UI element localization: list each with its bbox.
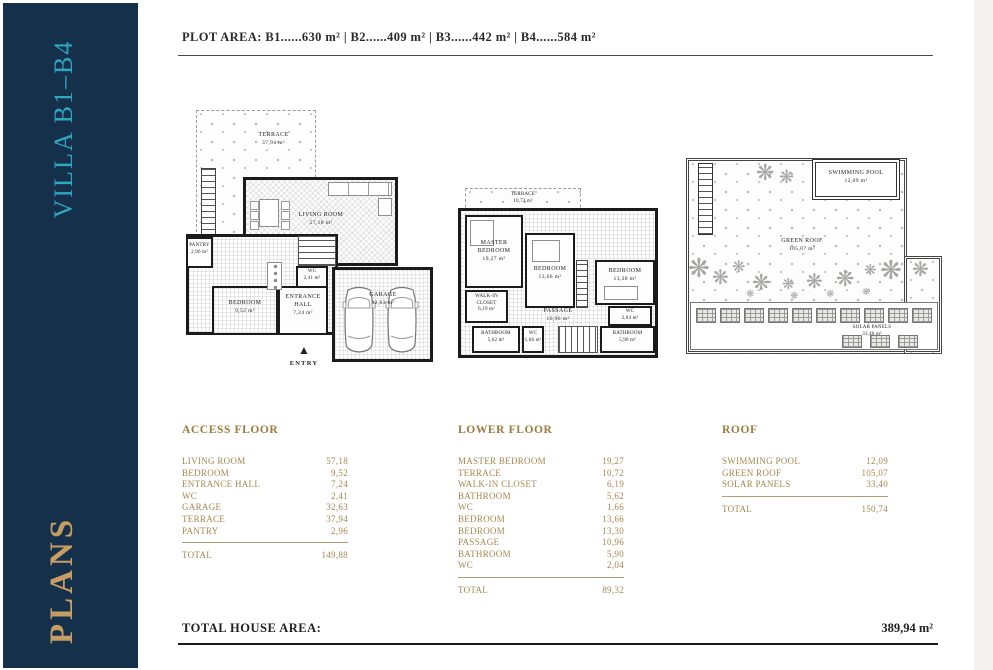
- sofa-icon: [378, 198, 392, 216]
- table-row: WALK-IN CLOSET6,19: [458, 479, 624, 491]
- entry-arrow-icon: ▲: [298, 344, 310, 356]
- table-row: PANTRY2,96: [182, 526, 348, 538]
- solar-panel: [696, 308, 716, 323]
- room-wc-label: WC 2,41 m²: [296, 269, 328, 282]
- tree-icon: ❋: [864, 264, 877, 279]
- room-wc-1-label: WC 1,66 m²: [522, 331, 544, 344]
- bush-icon: ❋: [746, 290, 754, 300]
- stairs-icon: [558, 326, 598, 353]
- tree-icon: ❋: [836, 268, 854, 290]
- table-row: TERRACE10,72: [458, 468, 624, 480]
- table-row: BEDROOM9,52: [182, 468, 348, 480]
- tree-icon: ❋: [779, 168, 794, 186]
- bush-icon: ❋: [826, 290, 834, 300]
- table-row: TERRACE37,94: [182, 514, 348, 526]
- solar-panel: [792, 308, 812, 323]
- table-row: BATHROOM5,90: [458, 549, 624, 561]
- ladder-icon: [698, 163, 713, 235]
- room-pool-label: SWIMMING POOL 12,09 m²: [816, 170, 896, 185]
- room-bathroom-1-label: BATHROOM 5,62 m²: [472, 331, 520, 344]
- tree-icon: ❋: [912, 260, 929, 280]
- sidebar-villa-title: VILLA B1–B4: [49, 34, 81, 224]
- access-floor-table: ACCESS FLOOR LIVING ROOM57,18 BEDROOM9,5…: [182, 424, 348, 560]
- table-row: WC2,04: [458, 560, 624, 572]
- chair-icon: [250, 211, 259, 220]
- chair-icon: [281, 201, 290, 210]
- plans-page: VILLA B1–B4 PLANS PLOT AREA: B1......630…: [0, 0, 993, 670]
- table-total-row: TOTAL149,88: [182, 542, 348, 560]
- bed-icon: [532, 240, 560, 262]
- lower-floor-plan: TERRACE 10,72 m² MASTER BEDROOM 19,27 m²…: [458, 188, 668, 365]
- solar-panel: [768, 308, 788, 323]
- lower-table-title: LOWER FLOOR: [458, 424, 624, 436]
- chair-icon: [250, 221, 259, 230]
- room-bedroom-label: BEDROOM 9,52 m²: [216, 300, 274, 315]
- room-garage-label: GARAGE 32,63 m²: [352, 292, 414, 307]
- stairs-icon: [298, 236, 336, 266]
- room-bedroom-1-label: BEDROOM 13,66 m²: [527, 266, 573, 281]
- stairs-icon: [576, 260, 588, 308]
- header-rule: [178, 55, 933, 56]
- table-total-row: TOTAL150,74: [722, 496, 888, 514]
- sidebar-plans-label: PLANS: [44, 505, 86, 655]
- solar-panel: [888, 308, 908, 323]
- sidebar: VILLA B1–B4 PLANS: [3, 3, 138, 668]
- table-row: ENTRANCE HALL7,24: [182, 479, 348, 491]
- table-row: BATHROOM5,62: [458, 491, 624, 503]
- solar-panel: [720, 308, 740, 323]
- dining-table-icon: [259, 199, 279, 227]
- table-row: MASTER BEDROOM19,27: [458, 456, 624, 468]
- sofa-icon: [328, 182, 392, 196]
- table-total-row: TOTAL89,32: [458, 577, 624, 595]
- total-house-area-value: 389,94 m²: [798, 621, 933, 636]
- bush-icon: ❋: [790, 292, 798, 302]
- access-floor-plan: TERRACE 37,94 m² LIVING ROOM 57,18 m² PA…: [186, 106, 454, 388]
- table-row: SOLAR PANELS33,40: [722, 479, 888, 491]
- room-living-label: LIVING ROOM 57,18 m²: [281, 212, 361, 227]
- chair-icon: [250, 201, 259, 210]
- solar-panel: [744, 308, 764, 323]
- room-master-label: MASTER BEDROOM 19,27 m²: [467, 240, 521, 263]
- plot-area-header: PLOT AREA: B1......630 m² | B2......409 …: [182, 30, 596, 45]
- tree-icon: ❋: [756, 162, 774, 184]
- table-row: WC1,66: [458, 502, 624, 514]
- room-terrace-label: TERRACE 10,72 m²: [488, 192, 558, 205]
- tree-icon: ❋: [752, 272, 770, 294]
- roof-table-title: ROOF: [722, 424, 888, 436]
- solar-panel: [912, 308, 932, 323]
- room-passage-label: PASSAGE 10,96 m²: [528, 308, 588, 323]
- tree-icon: ❋: [806, 272, 823, 292]
- page-edge-strip: [974, 0, 993, 670]
- roof-plan: SWIMMING POOL 12,09 m² GREEN ROOF 105,07…: [686, 156, 942, 362]
- footer-rule: [178, 643, 938, 645]
- solar-panel: [864, 308, 884, 323]
- entry-label: ENTRY: [284, 360, 324, 367]
- table-row: SWIMMING POOL12,09: [722, 456, 888, 468]
- lower-floor-table: LOWER FLOOR MASTER BEDROOM19,27 TERRACE1…: [458, 424, 624, 595]
- kitchen-hob-icon: [267, 262, 282, 290]
- tree-icon: ❋: [880, 258, 902, 284]
- room-terrace-label: TERRACE 37,94 m²: [231, 132, 316, 147]
- stairs-icon: [201, 168, 216, 237]
- table-row: BEDROOM13,66: [458, 514, 624, 526]
- room-bathroom-2-label: BATHROOM 5,90 m²: [605, 331, 650, 344]
- room-green-roof-label: GREEN ROOF 105,07 m²: [762, 238, 842, 253]
- room-pantry-label: PANTRY 2,96 m²: [186, 243, 213, 256]
- room-solar-label: SOLAR PANELS 33,40 m²: [834, 325, 910, 338]
- tree-icon: ❋: [688, 256, 710, 282]
- bush-icon: ❋: [862, 288, 870, 298]
- table-row: GARAGE32,63: [182, 502, 348, 514]
- access-table-title: ACCESS FLOOR: [182, 424, 348, 436]
- table-row: PASSAGE10,96: [458, 537, 624, 549]
- table-row: GREEN ROOF105,07: [722, 468, 888, 480]
- table-row: LIVING ROOM57,18: [182, 456, 348, 468]
- solar-panel: [840, 308, 860, 323]
- solar-panel: [816, 308, 836, 323]
- room-entrance-label: ENTRANCE HALL 7,24 m²: [280, 294, 326, 317]
- room-closet-label: WALK-IN CLOSET 6,19 m²: [465, 294, 508, 314]
- table-row: WC2,41: [182, 491, 348, 503]
- tree-icon: ❋: [732, 260, 745, 276]
- roof-table: ROOF SWIMMING POOL12,09 GREEN ROOF105,07…: [722, 424, 888, 514]
- room-wc-2-label: WC 2,04 m²: [608, 309, 652, 322]
- bed-icon: [604, 286, 638, 300]
- table-row: BEDROOM13,30: [458, 526, 624, 538]
- room-bedroom-2-label: BEDROOM 13,30 m²: [600, 268, 650, 283]
- total-house-area-label: TOTAL HOUSE AREA:: [182, 621, 321, 636]
- tree-icon: ❋: [712, 268, 729, 288]
